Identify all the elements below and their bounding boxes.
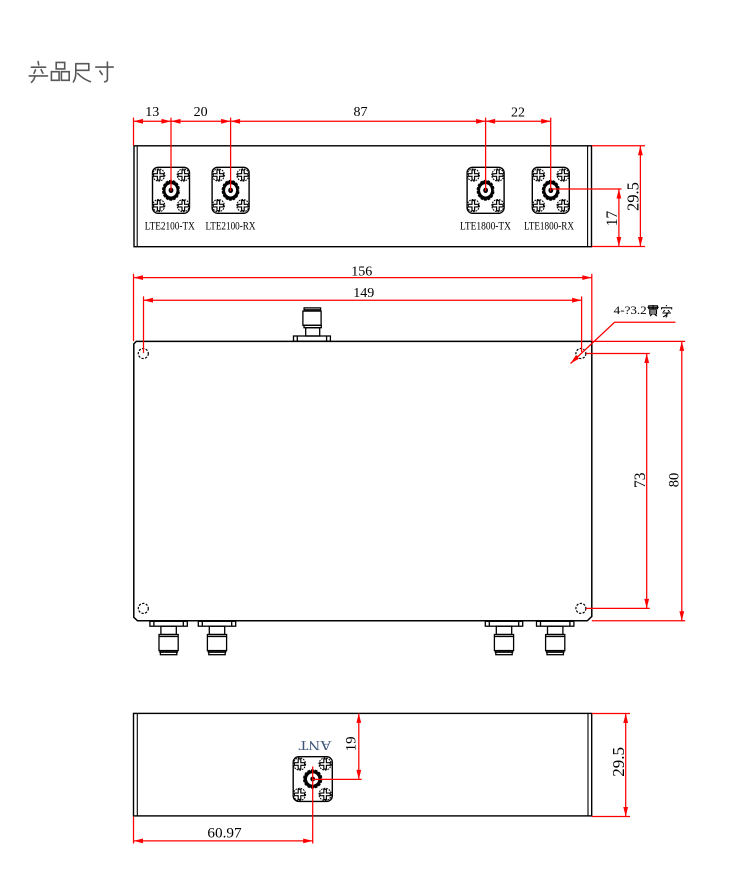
svg-text:60.97: 60.97 xyxy=(207,825,242,842)
svg-text:LTE2100-TX: LTE2100-TX xyxy=(145,221,196,233)
svg-text:LTE2100-RX: LTE2100-RX xyxy=(206,221,257,233)
svg-text:73: 73 xyxy=(632,472,649,488)
svg-text:17: 17 xyxy=(604,211,621,227)
svg-text:87: 87 xyxy=(354,105,368,120)
svg-text:4-?3.2: 4-?3.2 xyxy=(614,303,647,317)
svg-text:29.5: 29.5 xyxy=(609,747,628,777)
svg-text:19: 19 xyxy=(344,736,360,751)
svg-text:149: 149 xyxy=(353,286,374,301)
svg-text:80: 80 xyxy=(667,473,683,488)
svg-text:20: 20 xyxy=(194,105,208,120)
svg-text:LTE1800-TX: LTE1800-TX xyxy=(460,221,512,233)
svg-text:156: 156 xyxy=(351,265,372,280)
svg-text:ANT: ANT xyxy=(298,738,332,753)
svg-text:22: 22 xyxy=(511,106,525,121)
svg-text:13: 13 xyxy=(145,105,159,120)
svg-text:LTE1800-RX: LTE1800-RX xyxy=(524,221,575,233)
svg-text:29.5: 29.5 xyxy=(623,182,642,211)
